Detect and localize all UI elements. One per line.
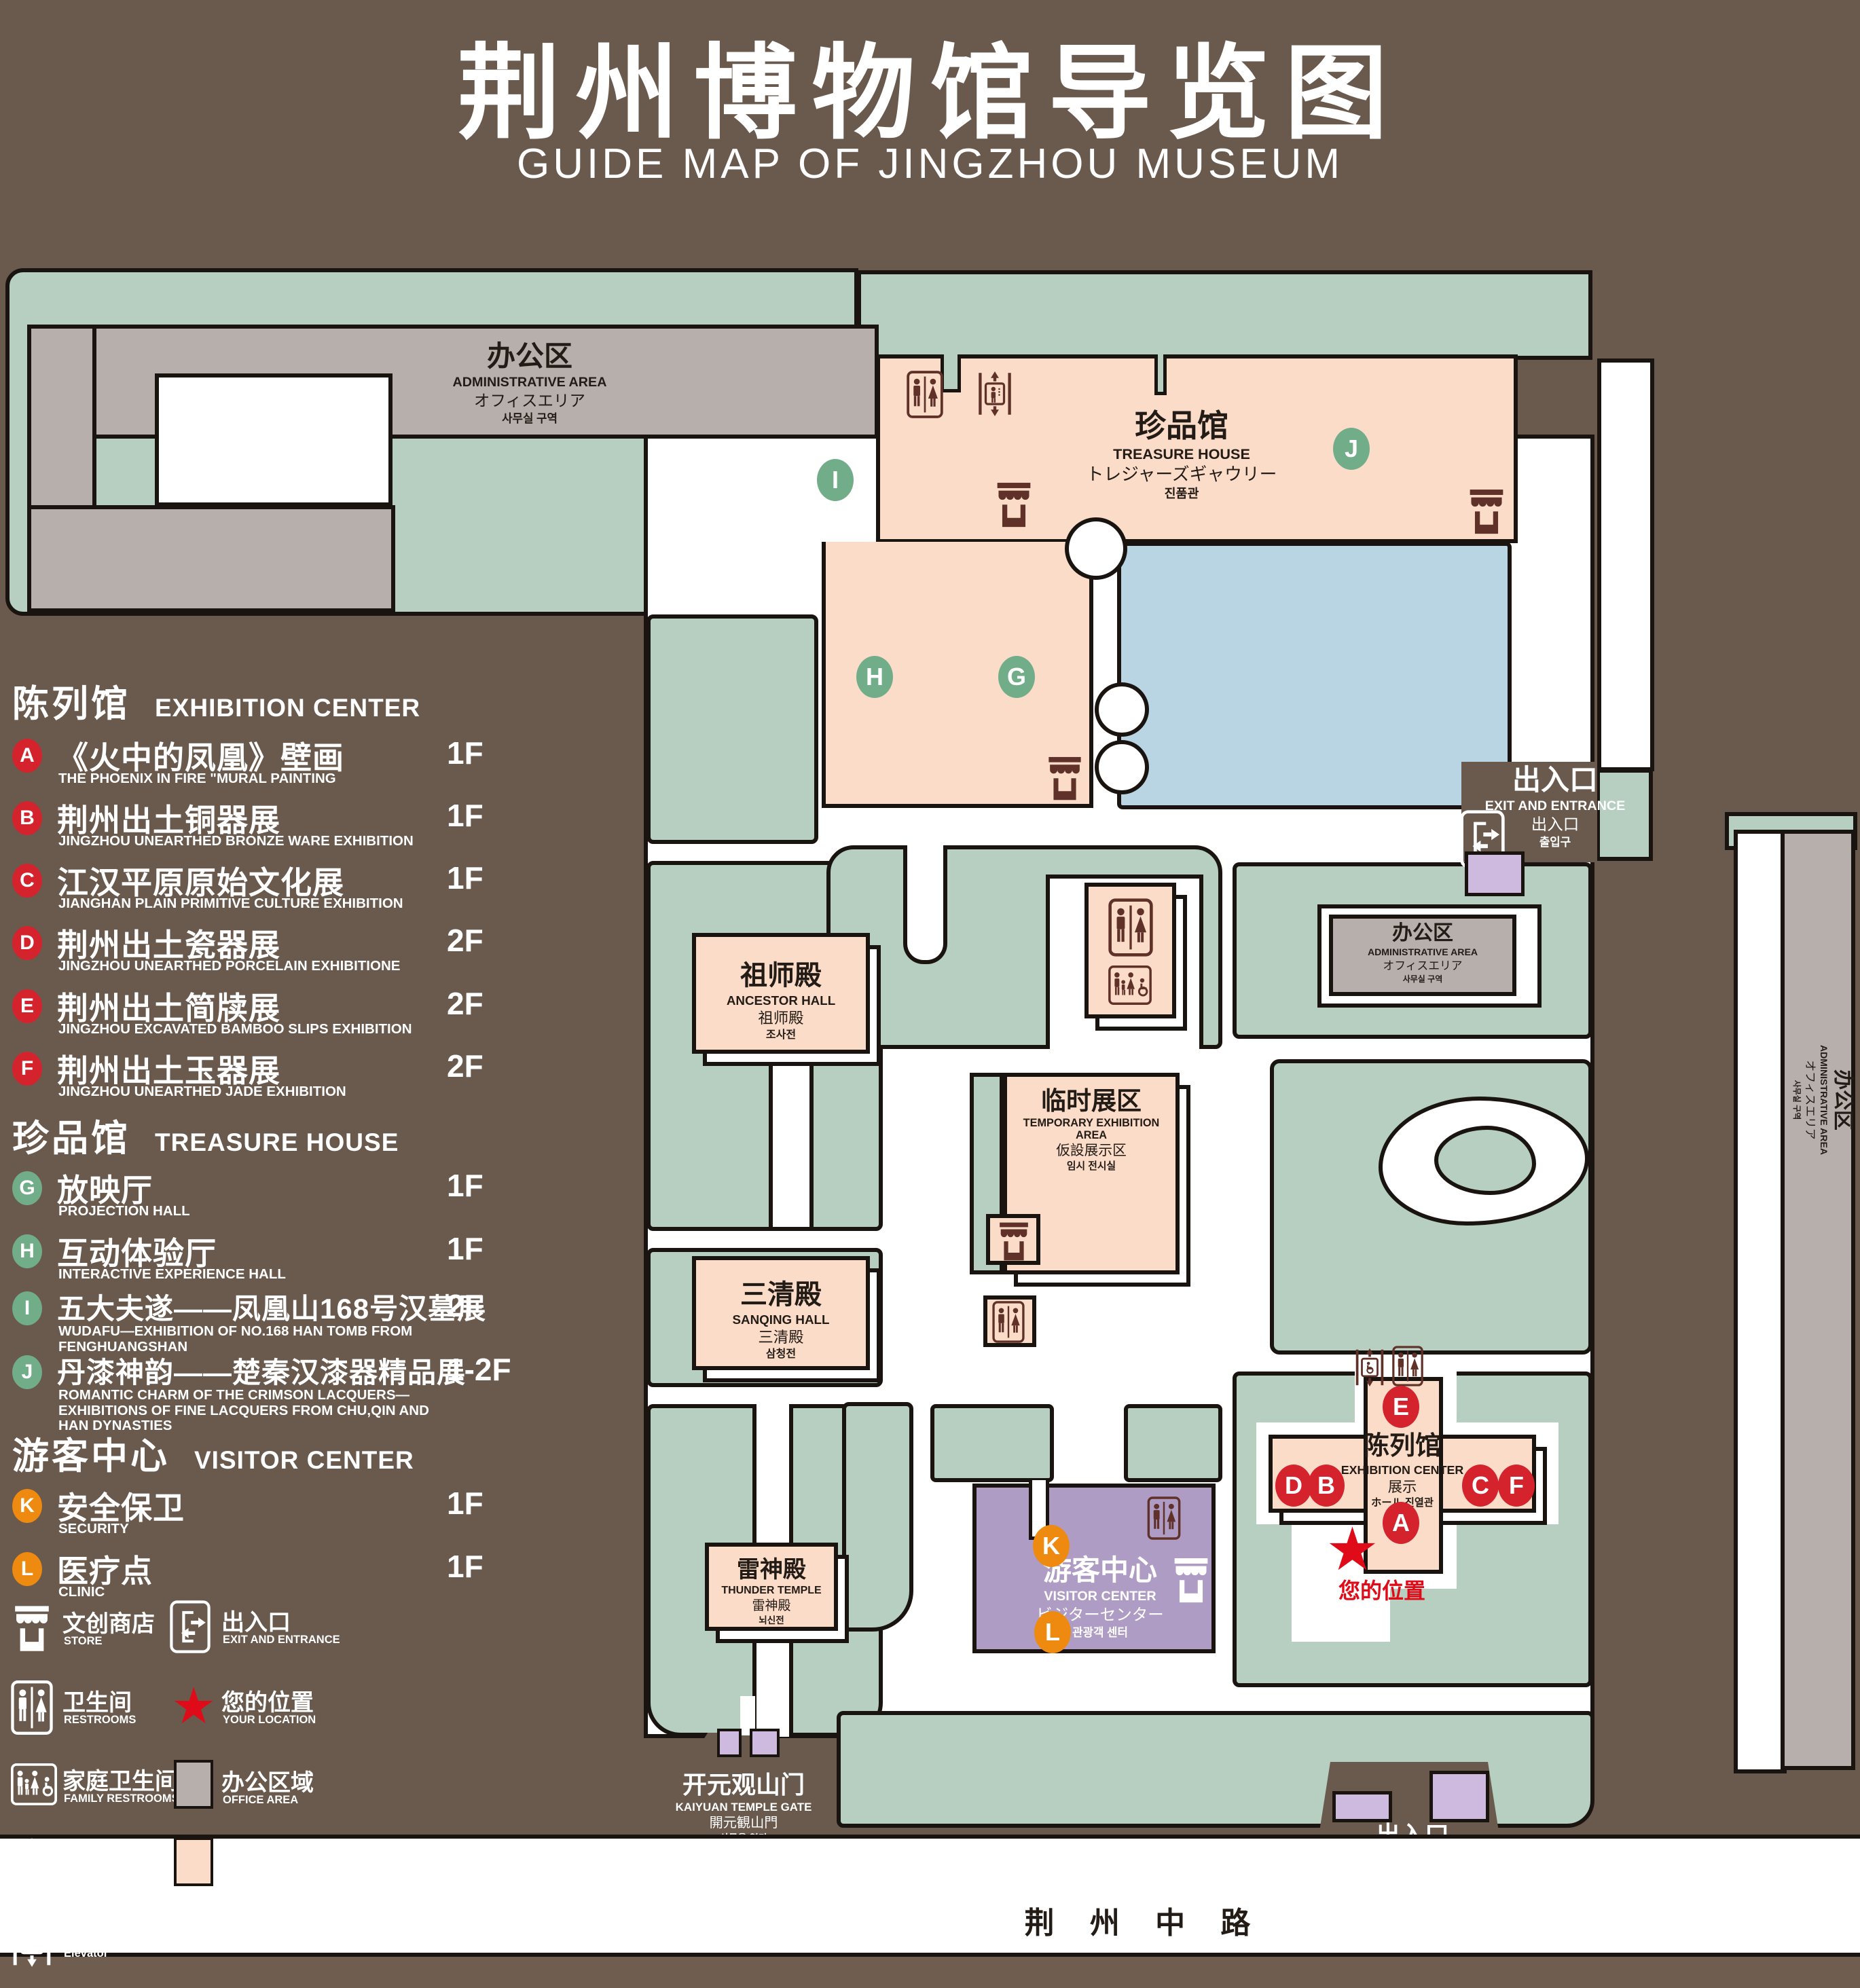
elevator-icon [977, 368, 1013, 420]
legend-badge-h: H [12, 1234, 42, 1268]
restrooms-icon [1146, 1496, 1182, 1540]
map-marker-G: G [998, 656, 1035, 698]
path-slot [769, 1057, 814, 1227]
your-location-star-icon: ★ [1326, 1520, 1379, 1579]
admin-nw-label: 办公区 ADMINISTRATIVE AREA オフィスエリア 사무실 구역 [394, 339, 665, 425]
legend-badge-d: D [12, 926, 42, 960]
legend-badge-j: J [12, 1355, 42, 1389]
admin-strip-label: 办公区 ADMINISTRATIVE AREA オフィスエリア 사무실 구역 [1780, 998, 1855, 1202]
green-block [1124, 1404, 1222, 1482]
pond-scallop [1095, 740, 1149, 794]
display-area-swatch [174, 1837, 213, 1886]
store-icon [11, 1604, 53, 1653]
legend-badge-i: I [12, 1291, 42, 1325]
map-marker-C: C [1462, 1465, 1499, 1507]
pond-scallop [1095, 682, 1149, 737]
road-surface [0, 1953, 1860, 1988]
west-gate-label: 开元观山门 KAIYUAN TEMPLE GATE 開元観山門 산문을 열다 [628, 1771, 859, 1845]
legend-badge-a: A [12, 739, 42, 773]
green-block [842, 1402, 913, 1632]
legend-badge-f: F [12, 1052, 42, 1086]
map-marker-H: H [856, 656, 893, 698]
pond-bridge-arc [1065, 517, 1127, 580]
roof-notch [941, 354, 961, 392]
south-exit-kiosk [1429, 1771, 1489, 1822]
legend-item-i: I 五大夫遂——凤凰山168号汉墓展 WUDAFU—EXHIBITION OF … [12, 1291, 549, 1348]
legend-item-d: D 荆州出土瓷器展 JINGZHOU UNEARTHED PORCELAIN E… [12, 926, 549, 983]
legend-section-exhibition-center: 陈列馆EXHIBITION CENTER [12, 674, 420, 727]
map-marker-D: D [1275, 1465, 1312, 1507]
legend-item-c: C 江汉平原原始文化展 JIANGHAN PLAIN PRIMITIVE CUL… [12, 864, 549, 921]
path-slot [752, 1404, 793, 1544]
gate-kiosk [717, 1729, 742, 1757]
se-corridor-path [1734, 830, 1787, 1773]
south-exit-kiosk [1332, 1791, 1392, 1822]
admin-nw-building-bottom [27, 505, 395, 612]
accessible-elevator-icon [11, 1836, 53, 1892]
location-star-icon: ★ [171, 1681, 216, 1731]
legend-item-f: F 荆州出土玉器展 JINGZHOU UNEARTHED JADE EXHIBI… [12, 1052, 549, 1109]
legend-item-k: K 安全保卫 SECURITY 1F [12, 1489, 549, 1546]
legend-icon-store: 文创商店 STORE [11, 1604, 167, 1665]
page-title: 荆州博物馆导览图 [0, 10, 1860, 159]
path-arch-slot [903, 845, 947, 964]
map-marker-B: B [1308, 1465, 1345, 1507]
road-label: 荆 州 中 路 [924, 1898, 1365, 1942]
green-block [646, 614, 818, 844]
legend-icon-exit: 出入口 EXIT AND ENTRANCE [170, 1600, 394, 1661]
ne-path-corridor [1597, 358, 1654, 771]
your-location-text: 您的位置 [1307, 1574, 1457, 1605]
entrance-kiosk [1465, 851, 1525, 896]
restrooms-icon [1392, 1345, 1423, 1387]
legend-icon-display-area: 展示区域 DISPLAY AREA [170, 1837, 394, 1898]
store-icon [993, 481, 1035, 528]
store-icon [1169, 1556, 1213, 1604]
legend-badge-b: B [12, 801, 42, 835]
guide-map-poster: { "title": {"zh": "荆州博物馆导览图", "en": "GUI… [0, 0, 1860, 1988]
legend-icon-your-location: ★ 您的位置 YOUR LOCATION [170, 1680, 394, 1741]
elevator-icon [11, 1913, 53, 1969]
green-block [930, 1404, 1054, 1482]
legend-item-b: B 荆州出土铜器展 JINGZHOU UNEARTHED BRONZE WARE… [12, 801, 549, 858]
legend-badge-e: E [12, 989, 42, 1023]
treasure-house-label: 珍品馆 TREASURE HOUSE トレジャーズギャウリー 진품관 [991, 407, 1372, 501]
map-marker-A: A [1383, 1502, 1419, 1544]
map-marker-I: I [817, 459, 854, 501]
legend-item-j: J 丹漆神韵——楚秦汉漆器精品展 ROMANTIC CHARM OF THE C… [12, 1355, 549, 1412]
map-marker-E: E [1383, 1386, 1419, 1428]
admin-e-building: 办公区 ADMINISTRATIVE AREA オフィスエリア 사무실 구역 [1329, 915, 1516, 996]
legend-badge-g: G [12, 1171, 42, 1205]
exit-icon [170, 1600, 211, 1654]
store-icon [996, 1221, 1032, 1262]
store-icon [1465, 487, 1508, 535]
map-marker-F: F [1498, 1465, 1535, 1507]
sanqing-hall: 三清殿 SANQING HALL 三清殿 삼청전 [692, 1256, 870, 1370]
legend-icon-family-restrooms: 家庭卫生间 FAMILY RESTROOMS [11, 1759, 167, 1820]
legend-icon-restrooms: 卫生间 RESTROOMS [11, 1680, 167, 1741]
pond [1117, 542, 1512, 809]
legend-item-g: G 放映厅 PROJECTION HALL 1F [12, 1171, 549, 1228]
restrooms-icon [991, 1301, 1025, 1343]
office-area-swatch [174, 1760, 213, 1809]
legend-item-h: H 互动体验厅 INTERACTIVE EXPERIENCE HALL 1F [12, 1234, 549, 1291]
store-icon [1044, 755, 1085, 801]
legend-item-e: E 荆州出土简牍展 JINGZHOU EXCAVATED BAMBOO SLIP… [12, 989, 549, 1046]
legend-badge-k: K [12, 1489, 42, 1523]
legend-section-treasure-house: 珍品馆TREASURE HOUSE [12, 1108, 399, 1162]
legend-badge-c: C [12, 864, 42, 898]
map-marker-J: J [1333, 428, 1370, 470]
family-restrooms-icon [11, 1763, 57, 1806]
north-landscape-band [857, 270, 1592, 360]
legend-icon-elevator: 电梯 Elevator [11, 1913, 167, 1974]
temporary-exhibition-label: 临时展区 TEMPORARY EXHIBITION AREA 仮設展示区 임시 … [1006, 1086, 1176, 1173]
family-restrooms-icon [1108, 965, 1152, 1005]
restrooms-icon [1108, 898, 1153, 957]
legend-section-visitor-center: 游客中心VISITOR CENTER [12, 1426, 414, 1479]
admin-strip-building [1781, 830, 1855, 1770]
path-slot [752, 1630, 793, 1737]
map-marker-K: K [1033, 1525, 1070, 1567]
page-subtitle: GUIDE MAP OF JINGZHOU MUSEUM [0, 140, 1860, 188]
thunder-temple: 雷神殿 THUNDER TEMPLE 雷神殿 뇌신전 [705, 1543, 838, 1631]
nw-courtyard [155, 373, 393, 507]
map-marker-L: L [1034, 1611, 1071, 1653]
roof-notch [1154, 354, 1167, 395]
legend-item-a: A 《火中的凤凰》壁画 THE PHOENIX IN FIRE "MURAL P… [12, 739, 549, 796]
legend-icon-office-area: 办公区域 OFFICE AREA [170, 1760, 394, 1821]
accessible-elevator-icon [1354, 1346, 1385, 1388]
legend-badge-l: L [12, 1552, 42, 1586]
restrooms-icon [11, 1680, 53, 1735]
ancestor-hall: 祖师殿 ANCESTOR HALL 祖师殿 조사전 [692, 933, 870, 1054]
restrooms-icon [907, 370, 943, 419]
legend-icon-accessible-elevator: 无障碍电梯 ACCESSIBLE ELEVATOR [11, 1836, 167, 1897]
gate-kiosk [750, 1729, 780, 1757]
